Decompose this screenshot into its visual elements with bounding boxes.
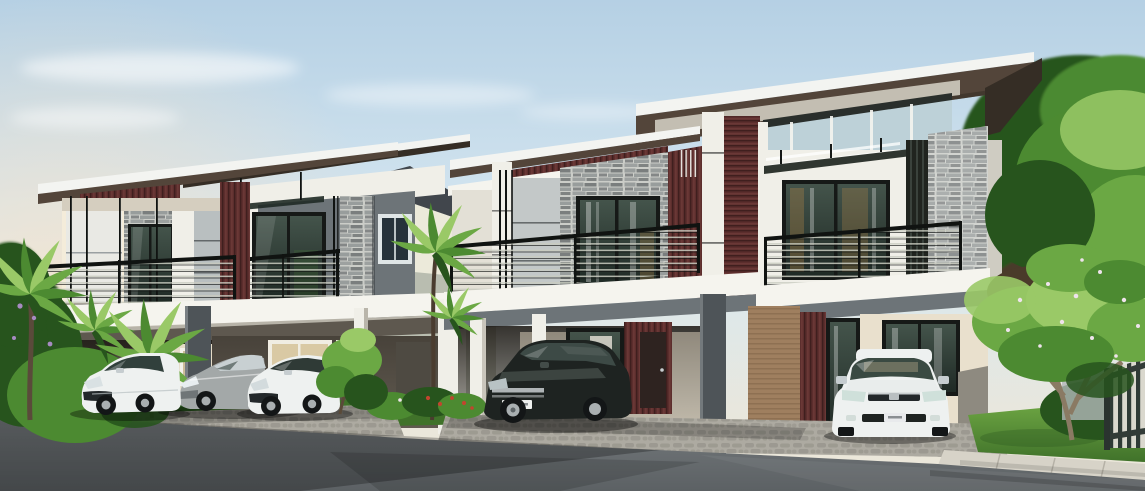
scene-canvas [0, 0, 1145, 491]
side-mirror [116, 368, 124, 373]
fog-light [846, 415, 856, 421]
hood [844, 380, 940, 392]
side-mirror-right [938, 376, 949, 384]
fog-light-2 [930, 415, 940, 421]
headlight-right [922, 390, 946, 402]
side-mirror [284, 370, 292, 375]
house-2-central-white-pillar [702, 112, 724, 298]
brand-badge [889, 393, 899, 400]
headlight-left [842, 390, 866, 402]
side-mirror [540, 362, 549, 368]
wheel-left [838, 427, 854, 436]
palm-trunk [30, 296, 32, 420]
door-handle [660, 368, 664, 372]
interior-hint [864, 362, 918, 372]
house-2-louver-accent [680, 150, 697, 177]
rendering: 3D architectural rendering of modern two… [0, 0, 1145, 491]
wheel-right [932, 427, 948, 436]
house-2-maroon-panel-horizontal [724, 116, 760, 298]
side-mirror-left [836, 376, 847, 384]
